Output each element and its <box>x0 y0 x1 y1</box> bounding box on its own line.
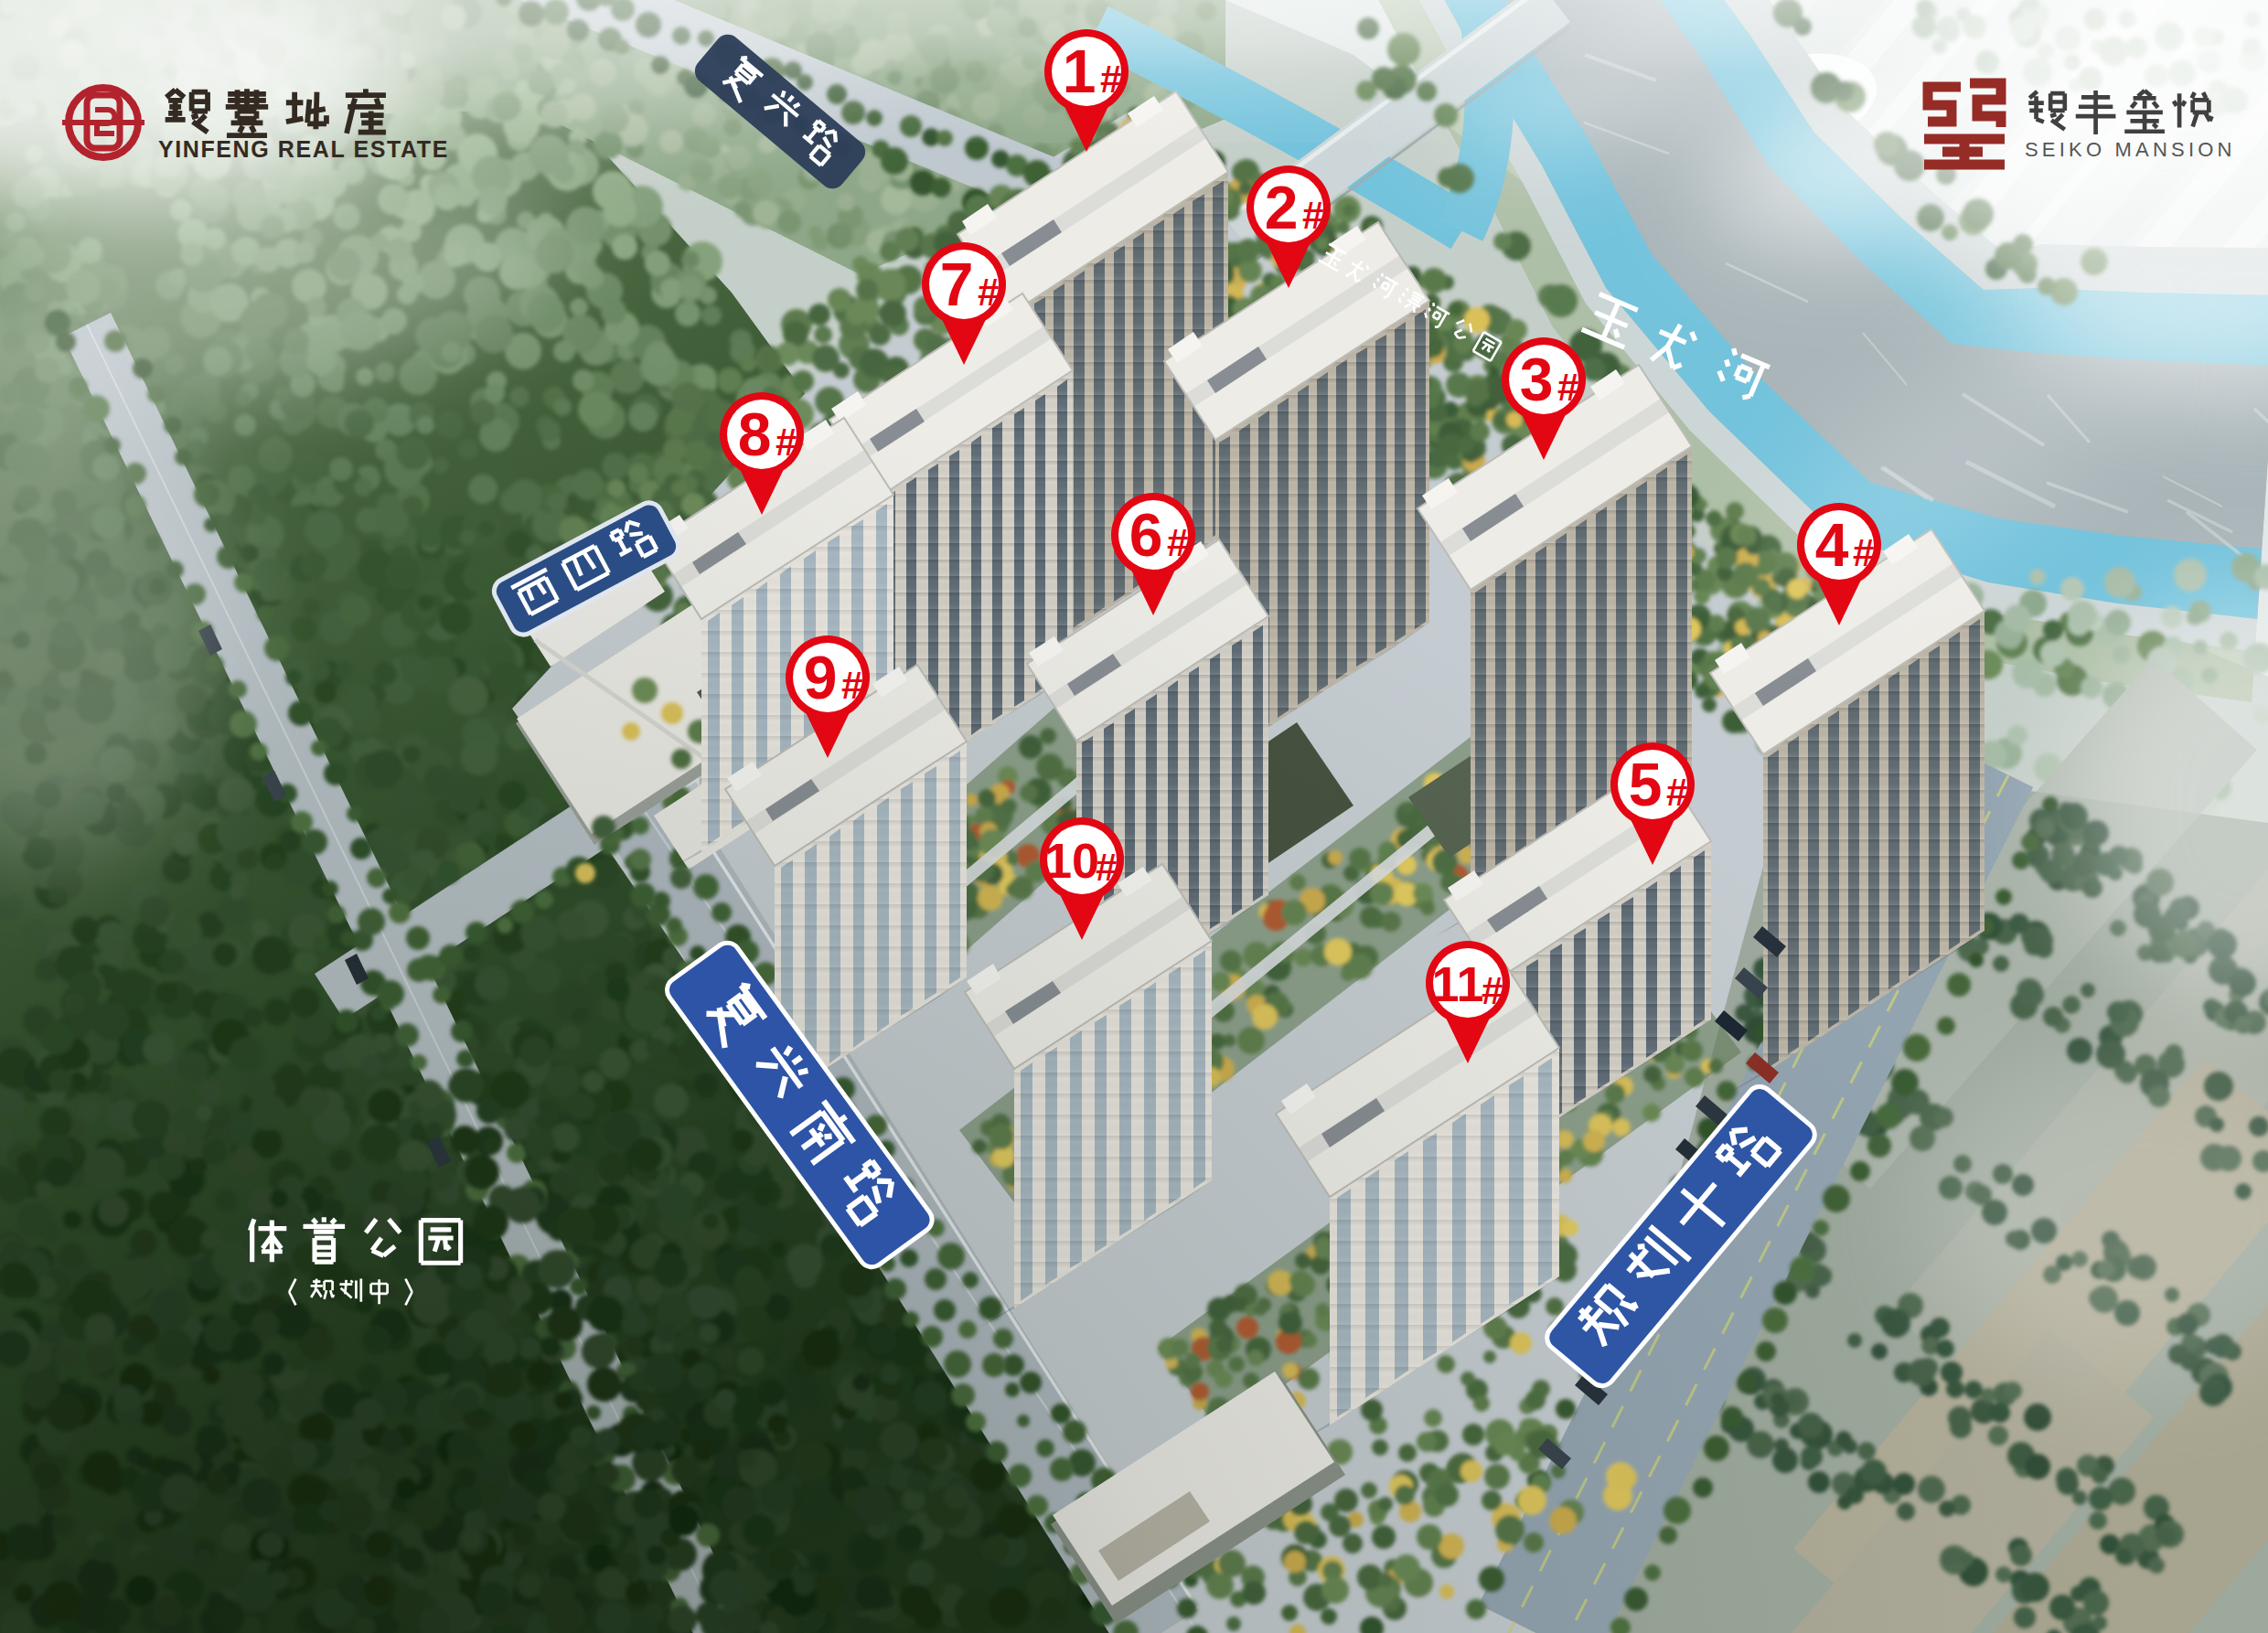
svg-text:YINFENG REAL ESTATE: YINFENG REAL ESTATE <box>158 136 449 162</box>
svg-text:7: 7 <box>940 251 974 318</box>
svg-text:#: # <box>841 664 862 707</box>
svg-text:#: # <box>1853 531 1874 574</box>
svg-text:SEIKO MANSION: SEIKO MANSION <box>2025 138 2236 161</box>
svg-text:4: 4 <box>1815 511 1849 579</box>
svg-text:3: 3 <box>1520 346 1554 413</box>
svg-text:5: 5 <box>1629 751 1663 818</box>
svg-text:#: # <box>1557 366 1578 409</box>
svg-text:#: # <box>1302 194 1323 237</box>
svg-text:#: # <box>978 271 999 314</box>
svg-text:#: # <box>1100 58 1121 101</box>
svg-text:9: 9 <box>804 644 838 711</box>
svg-text:2: 2 <box>1265 174 1299 241</box>
svg-text:1: 1 <box>1063 37 1097 105</box>
svg-text:11: 11 <box>1431 956 1483 1011</box>
svg-text:#: # <box>1482 969 1503 1012</box>
svg-text:#: # <box>776 421 797 464</box>
svg-text:#: # <box>1096 846 1117 889</box>
svg-text:10: 10 <box>1044 833 1099 888</box>
svg-text:8: 8 <box>738 400 772 468</box>
svg-text:#: # <box>1167 521 1188 564</box>
svg-text:#: # <box>1666 771 1687 814</box>
svg-text:6: 6 <box>1129 501 1163 569</box>
